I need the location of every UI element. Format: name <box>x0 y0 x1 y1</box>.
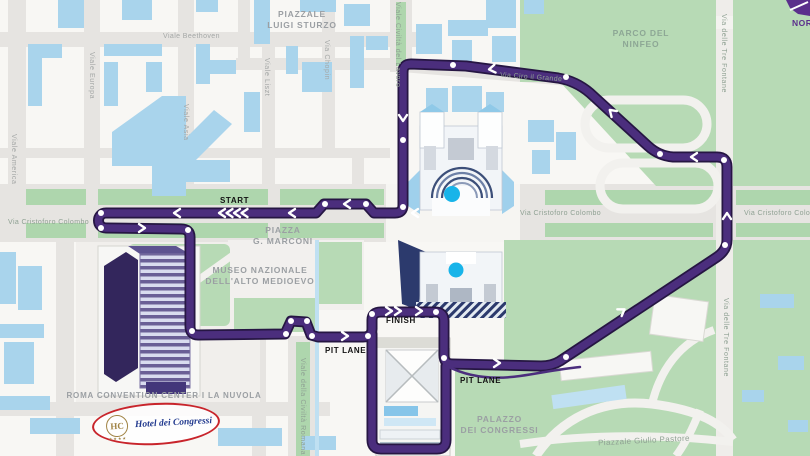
twin-palace-lower-illustration <box>398 240 506 318</box>
start-label: START <box>220 196 249 205</box>
finish-label: FINISH <box>386 316 416 325</box>
street-label-via-chopin: Via Chopin <box>323 40 330 80</box>
hotel-name: Hotel dei Congressi <box>135 416 212 430</box>
place-label-roma-convention-center: ROMA CONVENTION CENTER I LA NUVOLA <box>58 391 270 401</box>
street-label-via-delle-tre-fontane-bottom: Via delle Tre Fontane <box>722 298 729 377</box>
street-label-viale-liszt: Viale Liszt <box>263 58 270 96</box>
street-label-colombo-center: Via Cristoforo Colombo <box>520 210 601 217</box>
hotel-monogram: HC <box>105 414 128 437</box>
fountain-dot-upper <box>444 186 460 202</box>
street-label-viale-civilta-del-lavoro: Viale Civiltà del Lavoro <box>394 2 401 87</box>
hotel-stars: ★★★★ <box>109 436 128 442</box>
street-label-colombo-left: Via Cristoforo Colombo <box>8 219 89 226</box>
map-graphic <box>0 0 810 456</box>
compass-label: NOR <box>792 18 810 28</box>
street-label-viale-asia: Viale Asia <box>182 104 189 141</box>
pit-lane-label-right: PIT LANE <box>460 376 501 385</box>
street-label-viale-europa: Viale Europa <box>88 52 95 99</box>
place-label-museo-nazionale: MUSEO NAZIONALE DELL'ALTO MEDIOEVO <box>196 265 324 286</box>
place-label-piazza-marconi: PIAZZA G. MARCONI <box>247 225 319 246</box>
place-label-piazzale-luigi-sturzo: PIAZZALE LUIGI STURZO <box>252 9 352 30</box>
pit-lane-label-left: PIT LANE <box>325 346 366 355</box>
street-label-viale-america: Viale America <box>10 134 17 184</box>
circuit-map: Viale Beethoven Viale Europa Viale Asia … <box>0 0 810 456</box>
street-label-colombo-right: Via Cristoforo Colombo <box>744 210 810 217</box>
place-label-parco-del-ninfeo: PARCO DEL NINFEO <box>598 28 684 49</box>
fountain-dot-lower <box>449 263 464 278</box>
street-label-viale-della-civilta-romana: Viale della Civiltà Romana <box>299 358 306 455</box>
street-label-viale-beethoven: Viale Beethoven <box>163 33 220 40</box>
place-label-palazzo-dei-congressi: PALAZZO DEI CONGRESSI <box>452 414 547 435</box>
street-label-via-delle-tre-fontane-top: Via delle Tre Fontane <box>720 14 727 93</box>
